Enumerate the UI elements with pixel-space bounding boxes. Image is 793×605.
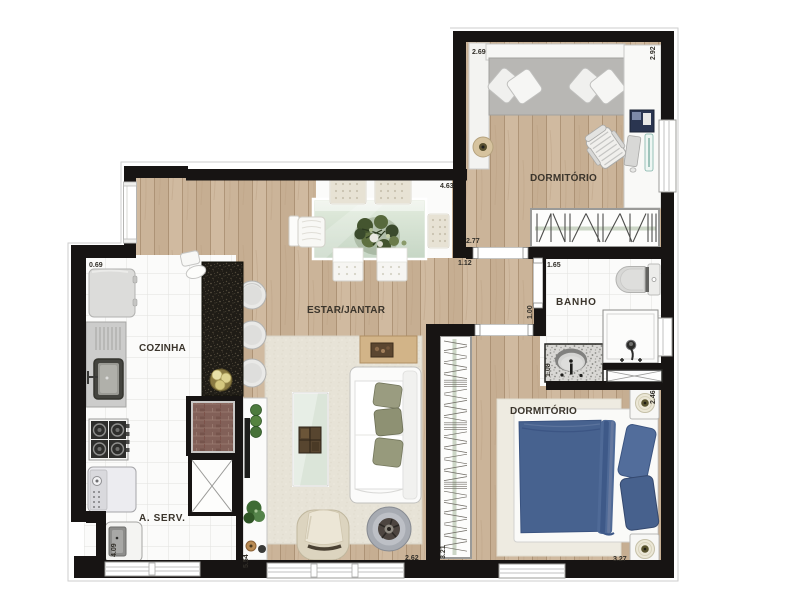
svg-text:1.12: 1.12 xyxy=(458,260,472,267)
svg-text:1.00: 1.00 xyxy=(527,305,534,319)
svg-text:0.69: 0.69 xyxy=(89,262,103,269)
svg-text:2.77: 2.77 xyxy=(466,238,480,245)
svg-text:2.69: 2.69 xyxy=(472,49,486,56)
svg-text:ESTAR/JANTAR: ESTAR/JANTAR xyxy=(307,305,386,316)
svg-text:1.08: 1.08 xyxy=(545,363,552,377)
svg-text:COZINHA: COZINHA xyxy=(139,343,186,354)
svg-text:3.21: 3.21 xyxy=(440,545,447,559)
svg-text:2.62: 2.62 xyxy=(405,555,419,562)
svg-text:5.54: 5.54 xyxy=(243,554,250,568)
svg-text:A. SERV.: A. SERV. xyxy=(139,513,186,524)
svg-text:2.92: 2.92 xyxy=(650,46,657,60)
svg-text:3.27: 3.27 xyxy=(613,556,627,563)
svg-text:1.65: 1.65 xyxy=(547,262,561,269)
svg-text:DORMITÓRIO: DORMITÓRIO xyxy=(530,171,597,184)
svg-text:4.09: 4.09 xyxy=(111,543,118,557)
svg-text:4.63: 4.63 xyxy=(440,183,454,190)
svg-text:BANHO: BANHO xyxy=(556,297,597,308)
svg-text:2.46: 2.46 xyxy=(650,390,657,404)
svg-text:DORMITÓRIO: DORMITÓRIO xyxy=(510,404,577,417)
